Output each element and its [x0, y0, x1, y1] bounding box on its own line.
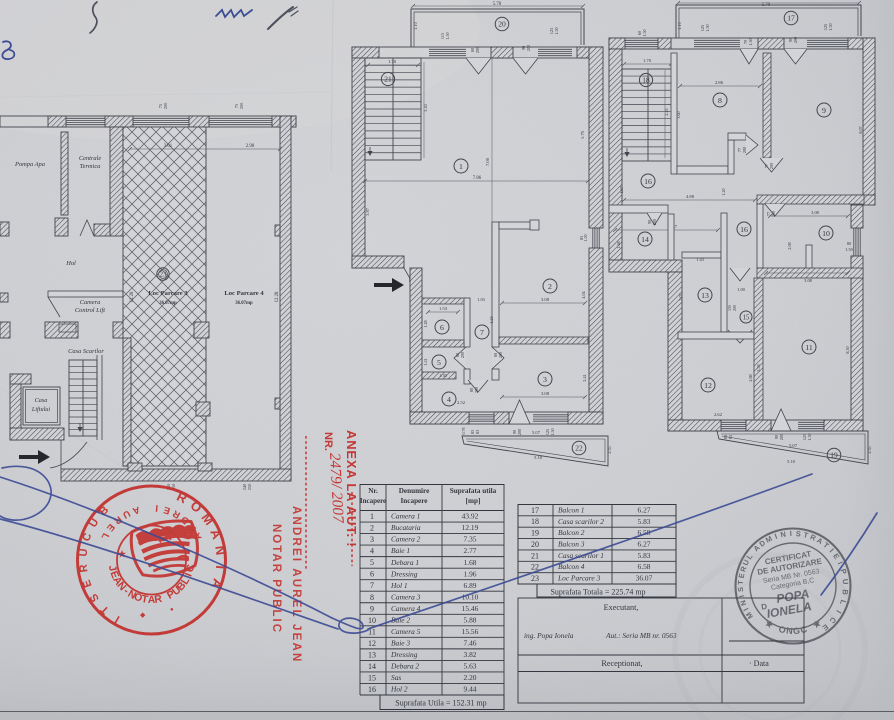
- svg-text:15: 15: [743, 314, 750, 321]
- svg-text:1.68: 1.68: [464, 558, 477, 567]
- svg-text:Suprafata Utila = 152.31 mp: Suprafata Utila = 152.31 mp: [395, 699, 486, 708]
- svg-text:6: 6: [440, 323, 444, 332]
- svg-text:5.70: 5.70: [493, 2, 502, 7]
- svg-text:17: 17: [531, 506, 539, 515]
- svg-text:36.07mp: 36.07mp: [159, 301, 177, 306]
- svg-text:◆: ◆: [140, 612, 146, 619]
- svg-text:2.07: 2.07: [678, 293, 683, 300]
- svg-text:Loc Parcare 3: Loc Parcare 3: [557, 574, 600, 583]
- svg-text:Hol 1: Hol 1: [390, 581, 408, 590]
- svg-text:Dressing: Dressing: [390, 650, 418, 659]
- svg-text:3.08: 3.08: [541, 391, 550, 396]
- svg-text:[mp]: [mp]: [466, 497, 481, 505]
- svg-text:1.50: 1.50: [705, 24, 710, 31]
- svg-text:15.46: 15.46: [462, 604, 479, 613]
- svg-text:22: 22: [575, 444, 583, 453]
- svg-text:Liftului: Liftului: [31, 406, 51, 413]
- svg-text:6.58: 6.58: [638, 562, 651, 571]
- svg-text:14: 14: [641, 235, 649, 244]
- svg-text:12.28: 12.28: [275, 291, 280, 302]
- svg-text:Debara 2: Debara 2: [390, 662, 419, 671]
- svg-text:NR.: NR.: [322, 432, 334, 451]
- svg-text:200: 200: [769, 163, 774, 169]
- svg-text:Suprafata utila: Suprafata utila: [450, 487, 497, 495]
- svg-text:6.27: 6.27: [638, 505, 651, 514]
- svg-text:20: 20: [498, 20, 506, 29]
- svg-text:200: 200: [652, 219, 657, 225]
- svg-text:Dressing: Dressing: [390, 569, 418, 578]
- svg-text:4.04: 4.04: [581, 290, 586, 298]
- svg-text:5.07: 5.07: [789, 443, 798, 448]
- svg-text:2.77: 2.77: [464, 546, 477, 555]
- svg-text:2.52: 2.52: [457, 400, 466, 405]
- svg-text:5.83: 5.83: [638, 551, 651, 560]
- svg-text:· Data: · Data: [749, 659, 769, 668]
- svg-text:1.50: 1.50: [445, 32, 450, 39]
- svg-text:3: 3: [543, 375, 547, 384]
- svg-text:2.62: 2.62: [714, 412, 723, 417]
- svg-text:12.28: 12.28: [130, 291, 135, 302]
- svg-text:1.21: 1.21: [423, 358, 428, 365]
- svg-text:4: 4: [370, 547, 374, 556]
- svg-text:Bucataria: Bucataria: [391, 523, 421, 532]
- svg-text:9: 9: [370, 604, 374, 613]
- svg-text:200: 200: [475, 47, 480, 53]
- svg-text:5.18: 5.18: [534, 455, 542, 460]
- svg-text:3.82: 3.82: [464, 650, 477, 659]
- svg-text:7.46: 7.46: [464, 638, 477, 647]
- svg-text:1.10: 1.10: [413, 21, 418, 29]
- svg-text:1.50: 1.50: [554, 27, 559, 34]
- svg-text:1.20: 1.20: [721, 188, 726, 195]
- svg-text:1.50: 1.50: [807, 433, 812, 440]
- svg-text:18: 18: [642, 76, 650, 85]
- svg-text:I: I: [790, 529, 792, 538]
- svg-text:Debara 1: Debara 1: [390, 558, 419, 567]
- svg-text:Camera 3: Camera 3: [391, 592, 421, 601]
- svg-text:13: 13: [701, 291, 709, 300]
- svg-text:0.78: 0.78: [461, 428, 466, 435]
- svg-text:36.07mp: 36.07mp: [235, 301, 253, 306]
- svg-text:200: 200: [460, 352, 465, 358]
- svg-text:●: ●: [170, 607, 174, 613]
- svg-text:Camera 1: Camera 1: [391, 512, 420, 521]
- svg-text:12: 12: [704, 381, 712, 390]
- svg-text:200: 200: [742, 147, 747, 153]
- svg-text:Hol: Hol: [65, 260, 76, 267]
- svg-text:5.83: 5.83: [638, 517, 651, 526]
- svg-text:21: 21: [531, 551, 539, 560]
- svg-text:1.96: 1.96: [464, 569, 477, 578]
- svg-text:7.86: 7.86: [473, 176, 482, 181]
- svg-text:200: 200: [517, 429, 522, 435]
- svg-text:Balcon 1: Balcon 1: [558, 505, 584, 514]
- svg-text:200: 200: [163, 102, 168, 109]
- svg-text:Balcon 4: Balcon 4: [558, 562, 585, 571]
- svg-text:8.07: 8.07: [858, 126, 863, 133]
- svg-text:5.18: 5.18: [787, 459, 795, 464]
- svg-text:Control Lift: Control Lift: [75, 307, 105, 314]
- svg-text:7: 7: [370, 581, 374, 590]
- svg-text:R: R: [78, 564, 91, 573]
- svg-text:3.08: 3.08: [811, 210, 819, 215]
- svg-text:200: 200: [793, 37, 798, 43]
- svg-text:1: 1: [459, 162, 463, 171]
- svg-text:1.50: 1.50: [828, 23, 833, 30]
- svg-text:Incapere: Incapere: [400, 497, 427, 505]
- svg-text:250: 250: [247, 483, 252, 490]
- svg-text:10: 10: [368, 616, 376, 625]
- svg-text:2.35: 2.35: [607, 446, 612, 453]
- svg-text:Termica: Termica: [80, 163, 101, 170]
- svg-text:1.30: 1.30: [439, 373, 446, 378]
- svg-text:2.35: 2.35: [867, 446, 872, 453]
- svg-text:8: 8: [370, 593, 374, 602]
- svg-text:2: 2: [548, 282, 552, 291]
- svg-text:8: 8: [718, 96, 722, 105]
- svg-text:2.86: 2.86: [715, 80, 724, 85]
- svg-text:2.08: 2.08: [787, 242, 792, 249]
- svg-text:8.50: 8.50: [845, 346, 850, 353]
- svg-text:16: 16: [740, 225, 748, 234]
- svg-text:1.50: 1.50: [845, 247, 852, 252]
- svg-text:Balcon 2: Balcon 2: [558, 528, 585, 537]
- svg-text:12.19: 12.19: [462, 523, 479, 532]
- svg-text:2.41: 2.41: [582, 374, 587, 381]
- svg-text:11: 11: [805, 343, 813, 352]
- svg-text:6.89: 6.89: [464, 581, 477, 590]
- svg-text:9: 9: [822, 106, 826, 115]
- svg-text:S: S: [795, 529, 801, 538]
- svg-text:1.50: 1.50: [550, 428, 555, 435]
- svg-text:15.56: 15.56: [462, 627, 479, 636]
- svg-text:200: 200: [498, 352, 503, 358]
- svg-text:1.50: 1.50: [642, 29, 647, 36]
- svg-text:3.08: 3.08: [541, 297, 550, 302]
- svg-text:23: 23: [531, 574, 539, 583]
- svg-text:5: 5: [437, 358, 441, 367]
- svg-text:5.70: 5.70: [762, 3, 771, 8]
- svg-text:7.35: 7.35: [464, 535, 477, 544]
- svg-text:1.70: 1.70: [643, 58, 652, 63]
- svg-text:Hol 2: Hol 2: [390, 685, 408, 694]
- svg-text:Loc Parcare 3: Loc Parcare 3: [148, 290, 188, 297]
- svg-text:Casa Scarilor: Casa Scarilor: [68, 348, 104, 355]
- svg-text:6: 6: [370, 570, 374, 579]
- svg-text:Loc Parcare 4: Loc Parcare 4: [224, 290, 264, 297]
- svg-text:3.01: 3.01: [164, 144, 173, 149]
- svg-text:1.67: 1.67: [619, 186, 624, 193]
- svg-text:200: 200: [779, 434, 784, 440]
- svg-text:5.07: 5.07: [532, 430, 541, 435]
- svg-text:1.43: 1.43: [696, 257, 704, 262]
- svg-text:13: 13: [368, 650, 376, 659]
- svg-text:5.63: 5.63: [464, 662, 477, 671]
- svg-text:Camera: Camera: [80, 299, 101, 306]
- svg-text:1.00: 1.00: [737, 287, 745, 292]
- svg-text:Pompa Apa: Pompa Apa: [14, 161, 45, 168]
- svg-text:4: 4: [447, 395, 451, 404]
- svg-text:3: 3: [370, 535, 374, 544]
- svg-text:2.88: 2.88: [748, 374, 753, 381]
- svg-text:Casa: Casa: [35, 397, 48, 404]
- svg-text:200: 200: [474, 387, 479, 393]
- svg-text:16: 16: [368, 685, 376, 694]
- svg-text:3.87: 3.87: [365, 207, 370, 215]
- svg-text:4.88: 4.88: [686, 194, 695, 199]
- svg-text:Centrale: Centrale: [79, 155, 102, 162]
- svg-text:Camera 4: Camera 4: [391, 604, 421, 613]
- svg-text:5: 5: [370, 558, 374, 567]
- svg-text:6.27: 6.27: [638, 540, 651, 549]
- svg-text:Balcon 3: Balcon 3: [558, 540, 585, 549]
- svg-text:1.50: 1.50: [748, 38, 753, 45]
- svg-text:Baie 3: Baie 3: [391, 638, 410, 647]
- svg-text:1.03: 1.03: [477, 297, 485, 302]
- svg-text:200: 200: [732, 305, 737, 311]
- svg-text:3.60: 3.60: [676, 111, 681, 118]
- svg-text:1.53: 1.53: [439, 306, 448, 311]
- svg-text:ing. Popa Ionela: ing. Popa Ionela: [524, 631, 574, 640]
- svg-text:4.24: 4.24: [489, 315, 494, 323]
- svg-text:ANDREI AUREL JEAN: ANDREI AUREL JEAN: [290, 506, 302, 664]
- svg-text:Incapere: Incapere: [360, 497, 386, 505]
- svg-text:200: 200: [526, 45, 531, 51]
- svg-text:1: 1: [370, 512, 374, 521]
- svg-text:Camera 2: Camera 2: [391, 535, 421, 544]
- svg-text:16: 16: [644, 177, 652, 186]
- svg-text:1.10: 1.10: [677, 21, 682, 29]
- svg-text:9.44: 9.44: [464, 685, 477, 694]
- svg-text:17: 17: [787, 14, 795, 23]
- svg-text:Executant,: Executant,: [604, 603, 639, 612]
- svg-text:2.98: 2.98: [246, 144, 255, 149]
- svg-text:Casa scarilor 2: Casa scarilor 2: [558, 517, 604, 526]
- svg-text:3.58: 3.58: [756, 364, 761, 371]
- svg-text:80: 80: [847, 241, 851, 246]
- svg-text:Sas: Sas: [391, 673, 401, 682]
- svg-text:21: 21: [384, 75, 392, 84]
- svg-text:Nr.: Nr.: [368, 487, 378, 495]
- svg-text:5.88: 5.88: [464, 615, 477, 624]
- svg-text:Suprafata Totala = 225.74 mp: Suprafata Totala = 225.74 mp: [550, 588, 645, 597]
- svg-text:19: 19: [830, 451, 838, 460]
- svg-text:7: 7: [480, 328, 484, 337]
- svg-text:3.08: 3.08: [804, 278, 812, 283]
- svg-text:NOTAR PUBLIC: NOTAR PUBLIC: [270, 524, 282, 634]
- svg-text:7.00: 7.00: [485, 157, 490, 166]
- svg-text:18: 18: [531, 517, 539, 526]
- svg-text:2.20: 2.20: [464, 673, 477, 682]
- svg-text:10: 10: [822, 229, 830, 238]
- svg-text:36.07: 36.07: [636, 574, 653, 583]
- svg-text:200: 200: [239, 102, 244, 109]
- svg-text:Aut.: Seria MB nr. 0563: Aut.: Seria MB nr. 0563: [605, 631, 677, 640]
- svg-text:1.50: 1.50: [583, 234, 588, 241]
- svg-text:Receptionat,: Receptionat,: [601, 659, 642, 668]
- svg-text:1.70: 1.70: [388, 59, 397, 64]
- svg-text:14: 14: [368, 662, 376, 671]
- svg-text:Denumire: Denumire: [399, 487, 430, 495]
- svg-text:2: 2: [370, 524, 374, 533]
- svg-text:12: 12: [368, 639, 376, 648]
- svg-text:Baie 1: Baie 1: [391, 546, 410, 555]
- svg-text:19: 19: [531, 529, 539, 538]
- svg-text:1.28: 1.28: [423, 320, 428, 327]
- svg-text:83: 83: [475, 430, 480, 434]
- svg-text:15: 15: [368, 673, 376, 682]
- svg-text:20: 20: [531, 540, 539, 549]
- svg-text:1.68: 1.68: [616, 241, 621, 248]
- svg-text:43.92: 43.92: [462, 512, 479, 521]
- svg-text:Camera 5: Camera 5: [391, 627, 421, 636]
- svg-text:U: U: [78, 548, 91, 557]
- svg-text:5.79: 5.79: [580, 130, 585, 138]
